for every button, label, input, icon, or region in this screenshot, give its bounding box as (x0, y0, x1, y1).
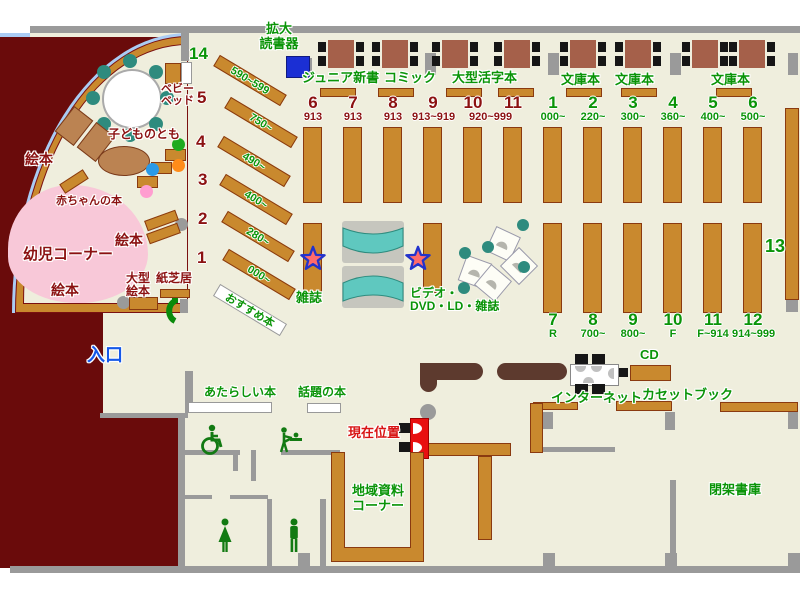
section-range: F~914 (692, 328, 734, 341)
magazines-label: 雑誌 (296, 291, 322, 306)
shelf-section-label: 11 F~914 (692, 311, 734, 341)
pillar (670, 53, 681, 75)
section-range: 220~ (572, 111, 614, 124)
wall (184, 495, 212, 499)
cushion-dot (140, 185, 153, 198)
shelf-section: 5 400~ (692, 94, 734, 124)
new-books-label: あたらしい本 (204, 386, 276, 399)
topic-books-label: 話題の本 (298, 386, 346, 399)
reading-table (504, 40, 530, 68)
cushion-dot (146, 163, 159, 176)
new-books-shelf (188, 402, 272, 413)
section-shelf (743, 127, 762, 203)
section-range: 913~919 (412, 111, 454, 124)
wall (543, 447, 615, 452)
section-number: 1 (197, 249, 206, 266)
closed-stacks-label: 閉架書庫 (709, 483, 761, 498)
shelf-section: 3 300~ (612, 94, 654, 124)
wall (100, 413, 188, 418)
section-range: 920~999 (469, 111, 511, 124)
section-shelf (743, 223, 762, 313)
chair (575, 354, 588, 364)
section-number: 1 (532, 94, 574, 111)
kamishibai-label: 紙芝居 (156, 272, 192, 285)
round-table (102, 69, 162, 129)
section-number: 3 (612, 94, 654, 111)
wall (267, 499, 272, 566)
section-number: 5 (692, 94, 734, 111)
section-number: 10 (652, 311, 694, 328)
shelf-section: 6 913 (292, 94, 334, 124)
section-shelf (623, 127, 642, 203)
section-number: 11 (692, 311, 734, 328)
male-toilet-icon (286, 518, 302, 554)
bookshelf (165, 63, 181, 84)
section-number: 5 (197, 89, 206, 106)
shelf-section: 6 500~ (732, 94, 774, 124)
curved-bench (340, 219, 406, 265)
bookshelf (785, 108, 799, 300)
star-marker (404, 245, 432, 273)
pillar (548, 53, 559, 75)
current-position-marker (399, 403, 439, 458)
section-number: 4 (196, 133, 205, 150)
section-number: 3 (198, 171, 207, 188)
section-number: 2 (198, 210, 207, 227)
toddler-corner-label: 幼児コーナー (23, 247, 113, 264)
reading-table (570, 40, 596, 68)
section-shelf (543, 127, 562, 203)
library-floor-map: 14 590~599 5 750~ 4 490~ 3 400~ 2 280~ 1… (0, 0, 800, 600)
chair (619, 368, 628, 377)
wall (181, 33, 189, 61)
cd-label: CD (640, 348, 659, 363)
reading-table (328, 40, 354, 68)
pillar (665, 553, 677, 566)
junior-shinsho-label: ジュニア新書 (302, 71, 379, 86)
shelf-section: 11 (492, 94, 534, 111)
cushion-dot (172, 159, 185, 172)
marker-chair (399, 423, 410, 433)
section-number: 8 (372, 94, 414, 111)
pillar (665, 412, 675, 430)
pillar (788, 53, 798, 75)
section-number: 2 (572, 94, 614, 111)
section-shelf (503, 127, 522, 203)
wall (233, 455, 238, 471)
comic-label: コミック (384, 71, 436, 86)
section-number: 8 (572, 311, 614, 328)
reading-table (625, 40, 651, 68)
pillar (543, 412, 553, 429)
section-shelf (703, 127, 722, 203)
baby-bed-label: ベビー ベッド (161, 83, 194, 108)
section-shelf (663, 127, 682, 203)
section-range: F (652, 328, 694, 341)
topic-books-shelf (307, 403, 341, 413)
section-shelf (583, 223, 602, 313)
section-shelf (623, 223, 642, 313)
arc-blue-strip (0, 33, 30, 37)
reading-table (692, 40, 718, 68)
wall (320, 499, 326, 566)
shelf-section: 9 913~919 (412, 94, 454, 124)
wall (30, 26, 800, 33)
shelf-section: 1 000~ (532, 94, 574, 124)
wheelchair-icon (198, 424, 226, 456)
shelf-section-label: 9 800~ (612, 311, 654, 341)
section-range: 913 (372, 111, 414, 124)
baby-bed (181, 62, 192, 84)
curved-bench (340, 264, 406, 310)
bunko-label-3: 文庫本 (711, 73, 750, 88)
shelf-section: 8 913 (372, 94, 414, 124)
section-range: 800~ (612, 328, 654, 341)
section-number: 6 (292, 94, 334, 111)
section-range: 913 (292, 111, 334, 124)
reading-table (382, 40, 408, 68)
section-number: 11 (492, 94, 534, 111)
internet-label: インターネット (551, 391, 642, 406)
shelf-section: 2 220~ (572, 94, 614, 124)
wall (10, 566, 800, 573)
bunko-label-2: 文庫本 (615, 73, 654, 88)
section-range: 400~ (692, 111, 734, 124)
bookshelf (630, 365, 671, 381)
star-marker (299, 245, 327, 273)
section-number: 12 (732, 311, 774, 328)
section-range: 500~ (732, 111, 774, 124)
shelf-section-label: 12 914~999 (732, 311, 774, 341)
section-shelf (343, 127, 362, 203)
pillar (788, 553, 800, 566)
picture-books-label-3: 絵本 (51, 283, 79, 299)
section-shelf (303, 127, 322, 203)
pillar (180, 299, 188, 313)
shelf-section-label: 8 700~ (572, 311, 614, 341)
section-number: 7 (332, 94, 374, 111)
bookshelf (160, 289, 190, 298)
bookshelf (530, 403, 543, 453)
pillar (788, 412, 798, 429)
section-shelf (463, 127, 482, 203)
baby-books-label: 赤ちゃんの本 (56, 195, 122, 207)
section-range: 914~999 (732, 328, 774, 341)
section-number: 9 (612, 311, 654, 328)
section-number: 4 (652, 94, 694, 111)
section-number: 7 (532, 311, 574, 328)
section-number: 6 (732, 94, 774, 111)
large-picture-books-label: 大型 絵本 (126, 272, 150, 299)
current-position-label: 現在位置 (348, 426, 400, 441)
kids-oval-table (98, 146, 150, 176)
shelf-section-label: 10 F (652, 311, 694, 341)
reading-table (442, 40, 468, 68)
section-range: 000~ (532, 111, 574, 124)
section-shelf (383, 127, 402, 203)
service-counter (420, 363, 437, 392)
entrance-label: 入口 (87, 345, 123, 365)
reading-table (739, 40, 765, 68)
large-print-label: 大型活字本 (452, 71, 517, 86)
internet-desk (568, 352, 630, 394)
pillar (543, 553, 555, 566)
local-materials-label: 地域資料 コーナー (347, 484, 409, 513)
kodomo-no-tomo-label: 子どものとも (108, 128, 180, 141)
monitor (608, 368, 614, 379)
marker-chair (399, 442, 410, 452)
wall (178, 418, 185, 566)
outside-area-below-corridor (103, 418, 178, 568)
cassette-book-label: カセットブック (642, 388, 733, 403)
section-number: 9 (412, 94, 454, 111)
bookshelf (427, 443, 511, 456)
female-toilet-icon (216, 518, 234, 554)
video-dvd-label: ビデオ・ DVD・LD・雑誌 (410, 287, 499, 314)
section-13-label: 13 (765, 236, 785, 256)
picture-books-label-2: 絵本 (115, 233, 143, 249)
section-shelf (703, 223, 722, 313)
baby-changing-icon (278, 425, 304, 455)
shelf-section: 4 360~ (652, 94, 694, 124)
section-shelf (663, 223, 682, 313)
service-counter (497, 363, 567, 380)
section-range: 360~ (652, 111, 694, 124)
bookshelf (129, 297, 158, 310)
section-number: 10 (452, 94, 494, 111)
bookshelf (720, 402, 798, 412)
pillar (786, 298, 798, 312)
bunko-label-1: 文庫本 (561, 73, 600, 88)
shelf-section: 7 913 (332, 94, 374, 124)
section-number: 14 (189, 45, 208, 62)
phone-icon (160, 296, 180, 324)
monitor (583, 377, 594, 383)
shelf-section: 10 920~999 (452, 94, 494, 124)
section-shelf (583, 127, 602, 203)
shelf-section-label: 7 R (532, 311, 574, 341)
section-range: R (532, 328, 574, 341)
section-range: 913 (332, 111, 374, 124)
bookshelf (478, 456, 492, 540)
section-shelf (543, 223, 562, 313)
chair (592, 354, 605, 364)
section-range: 300~ (612, 111, 654, 124)
wall (230, 495, 268, 499)
wall (251, 450, 256, 481)
zoom-reader-label: 拡大 読書器 (256, 22, 302, 51)
section-range: 700~ (572, 328, 614, 341)
pillar (298, 553, 310, 566)
picture-books-label-1: 絵本 (25, 152, 53, 168)
section-shelf (423, 127, 442, 203)
